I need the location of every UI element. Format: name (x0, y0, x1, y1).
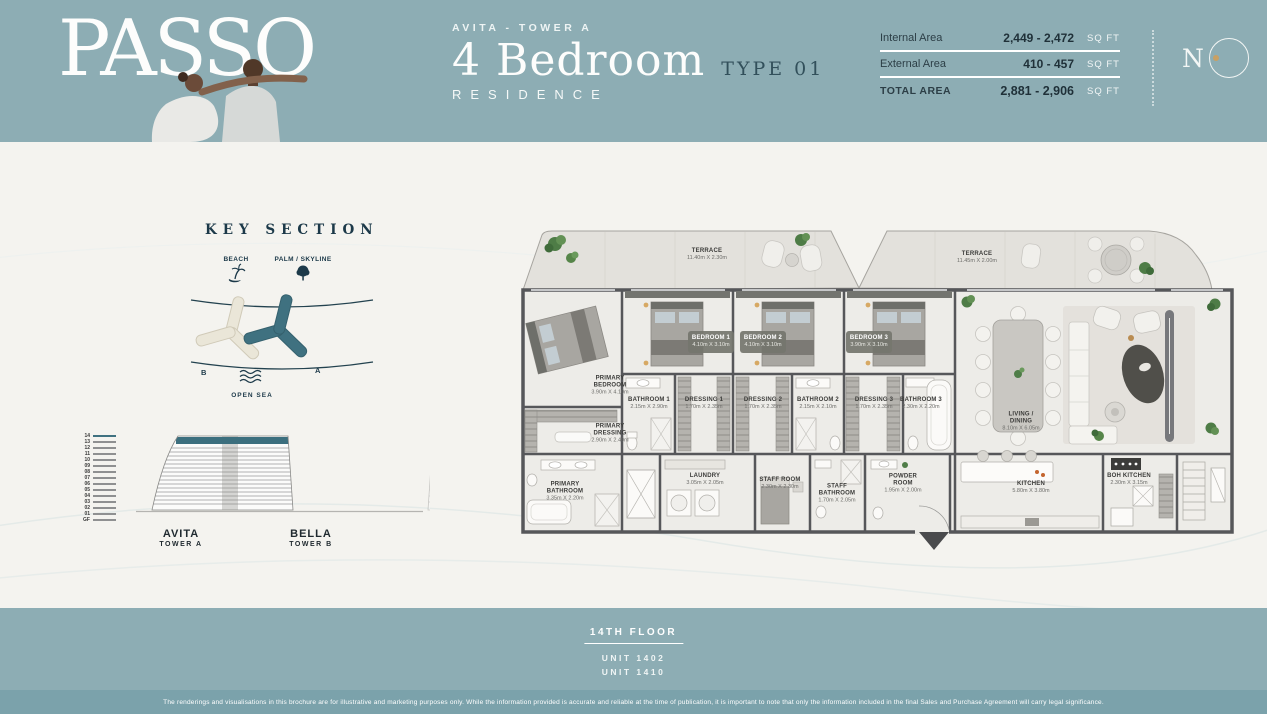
floor-scale: 1413121110090807060504030201GF (80, 433, 116, 523)
room-name: STAFF ROOM (756, 477, 804, 484)
floor-dash (93, 465, 116, 467)
room-name: PRIMARY BATHROOM (541, 482, 589, 496)
floor-dash (93, 501, 116, 503)
floor-number: 08 (80, 470, 90, 475)
room-label-powder-room: POWDER ROOM1.95m X 2.00m (879, 474, 927, 495)
floor-dash (93, 489, 116, 491)
floor-number: 03 (80, 500, 90, 505)
floor-number: 02 (80, 506, 90, 511)
room-label-bedroom-2: BEDROOM 24.10m X 3.10m (739, 335, 787, 349)
room-label-primary-bathroom: PRIMARY BATHROOM3.35m X 2.20m (541, 482, 589, 503)
key-map (183, 256, 381, 408)
room-dimensions: 5.80m X 3.80m (1007, 488, 1055, 494)
room-dimensions: 1.70m X 2.35m (680, 404, 728, 410)
floor-dash (93, 513, 116, 515)
room-dimensions: 4.10m X 3.10m (687, 342, 735, 348)
tower-b-letter: B (201, 368, 206, 377)
a-label: TOTAL AREA (880, 85, 978, 97)
room-dimensions: 1.95m X 2.00m (879, 488, 927, 494)
floor-dash (93, 507, 116, 509)
passo-logo: PASSO (58, 8, 358, 140)
room-name: BEDROOM 1 (687, 335, 735, 342)
room-name: STAFF BATHROOM (813, 484, 861, 498)
developer-logo-letter: N (1182, 44, 1204, 73)
shaft-box (627, 470, 655, 518)
avita-elevation (148, 436, 298, 510)
residence-title-block: AVITA - TOWER A 4 BedroomTYPE 01 RESIDEN… (452, 22, 824, 102)
floor-dash (93, 519, 116, 521)
avita-name: AVITA TOWER A (121, 528, 241, 548)
a-val: 2,449 - 2,472 (978, 31, 1074, 45)
room-label-kitchen: KITCHEN5.80m X 3.80m (1007, 481, 1055, 495)
floor-number: 06 (80, 482, 90, 487)
headboard-walls (625, 291, 952, 298)
room-label-bedroom-1: BEDROOM 14.10m X 3.10m (687, 335, 735, 349)
a-unit: SQ FT (1074, 33, 1120, 44)
room-name: BATHROOM 1 (625, 397, 673, 404)
tower-elevation: 1413121110090807060504030201GF (78, 430, 430, 556)
floor-number: 10 (80, 458, 90, 463)
room-dimensions: 2.90m X 2.40m (586, 438, 634, 444)
floor-info: 14TH FLOOR UNIT 1402UNIT 1410 (584, 622, 683, 679)
area-row: External Area410 - 457SQ FT (880, 52, 1120, 78)
bella-title: BELLA (251, 528, 371, 540)
room-dimensions: 1.70m X 2.05m (813, 498, 861, 504)
room-name: DRESSING 3 (850, 397, 898, 404)
floor-plan: TERRACE11.40m X 2.30mTERRACE11.45m X 2.0… (515, 222, 1237, 552)
key-section-title: KEY SECTION (205, 222, 379, 238)
a-unit: SQ FT (1074, 59, 1120, 70)
type-label: TYPE 01 (721, 58, 824, 80)
room-label-terrace-right: TERRACE11.45m X 2.00m (953, 251, 1001, 265)
residence-subtitle: RESIDENCE (452, 87, 824, 102)
room-label-terrace-left: TERRACE11.40m X 2.30m (683, 248, 731, 262)
room-dimensions: 4.10m X 3.10m (739, 342, 787, 348)
disclaimer-bar: The renderings and visualisations in thi… (0, 690, 1267, 714)
room-label-primary-dressing: PRIMARY DRESSING2.90m X 2.40m (586, 424, 634, 445)
tower-b-shape (193, 289, 273, 362)
room-name: BOH KITCHEN (1105, 473, 1153, 480)
sofa-set (1063, 304, 1195, 444)
building-elevations (118, 430, 430, 524)
a-val: 410 - 457 (978, 57, 1074, 71)
room-label-bedroom-3: BEDROOM 33.90m X 3.10m (845, 335, 893, 349)
bella-elevation (423, 436, 430, 510)
room-label-living-dining: LIVING / DINING8.10m X 6.05m (997, 412, 1045, 433)
brochure-page: PASSO AVITA - TOWER A 4 BedroomTYPE 01 R… (0, 0, 1267, 714)
room-label-boh-kitchen: BOH KITCHEN2.30m X 3.15m (1105, 473, 1153, 487)
room-name: PRIMARY BEDROOM (586, 376, 634, 390)
room-dimensions: 2.30m X 2.30m (756, 484, 804, 490)
a-val: 2,881 - 2,906 (978, 84, 1074, 98)
floor-dash (93, 495, 116, 497)
room-name: KITCHEN (1007, 481, 1055, 488)
room-name: BATHROOM 2 (794, 397, 842, 404)
room-dimensions: 2.30m X 3.15m (1105, 480, 1153, 486)
dotted-divider (1152, 30, 1154, 106)
floor-number: 04 (80, 494, 90, 499)
room-name: POWDER ROOM (879, 474, 927, 488)
room-label-primary-bedroom: PRIMARY BEDROOM3.90m X 4.10m (586, 376, 634, 397)
floor-number: 09 (80, 464, 90, 469)
room-label-bathroom-1: BATHROOM 12.15m X 2.90m (625, 397, 673, 411)
tower-line: AVITA - TOWER A (452, 22, 824, 34)
unit-list: UNIT 1402UNIT 1410 (584, 651, 683, 679)
room-name: DRESSING 1 (680, 397, 728, 404)
room-dimensions: 11.40m X 2.30m (683, 255, 731, 261)
sea-line (191, 362, 373, 369)
room-label-laundry: LAUNDRY3.05m X 2.05m (681, 473, 729, 487)
room-label-dressing-1: DRESSING 11.70m X 2.35m (680, 397, 728, 411)
room-label-staff-room: STAFF ROOM2.30m X 2.30m (756, 477, 804, 491)
floor-scale-row: GF (80, 517, 116, 523)
area-table: Internal Area2,449 - 2,472SQ FTExternal … (880, 26, 1120, 104)
floor-number: 05 (80, 488, 90, 493)
room-label-dressing-3: DRESSING 31.70m X 2.35m (850, 397, 898, 411)
floor-number: GF (80, 518, 90, 523)
unit-number: UNIT 1402 (584, 651, 683, 665)
bella-subtitle: TOWER B (251, 541, 371, 548)
floor-dash (93, 459, 116, 461)
floor-number: 14 (80, 434, 90, 439)
floor-number: 12 (80, 446, 90, 451)
room-dimensions: 1.70m X 2.35m (850, 404, 898, 410)
header-band: PASSO AVITA - TOWER A 4 BedroomTYPE 01 R… (0, 0, 1267, 142)
room-name: TERRACE (953, 251, 1001, 258)
tower-a-letter: A (315, 366, 320, 375)
room-name: BEDROOM 3 (845, 335, 893, 342)
a-label: External Area (880, 58, 978, 70)
circle-icon (1209, 38, 1249, 78)
avita-title: AVITA (121, 528, 241, 540)
room-dimensions: 3.05m X 2.05m (681, 480, 729, 486)
floor-number: 11 (80, 452, 90, 457)
residence-title: 4 BedroomTYPE 01 (452, 38, 824, 84)
room-name: LIVING / DINING (997, 412, 1045, 426)
disclaimer-text: The renderings and visualisations in thi… (163, 699, 1104, 706)
a-label: Internal Area (880, 32, 978, 44)
room-dimensions: 1.70m X 2.35m (739, 404, 787, 410)
residence-title-text: 4 Bedroom (452, 35, 705, 86)
floor-dash (93, 435, 116, 437)
a-unit: SQ FT (1074, 86, 1120, 97)
floor-number: 13 (80, 440, 90, 445)
floor-number: 07 (80, 476, 90, 481)
floor-dash (93, 453, 116, 455)
room-dimensions: 8.10m X 6.05m (997, 426, 1045, 432)
floor-dash (93, 441, 116, 443)
room-label-bathroom-2: BATHROOM 22.15m X 2.10m (794, 397, 842, 411)
floor-dash (93, 471, 116, 473)
room-dimensions: 3.90m X 3.10m (845, 342, 893, 348)
gold-dot-icon (1213, 55, 1219, 61)
bella-name: BELLA TOWER B (251, 528, 371, 548)
dancers-photo (106, 42, 321, 142)
room-label-staff-bathroom: STAFF BATHROOM1.70m X 2.05m (813, 484, 861, 505)
room-name: DRESSING 2 (739, 397, 787, 404)
area-row: Internal Area2,449 - 2,472SQ FT (880, 26, 1120, 52)
floor-dash (93, 483, 116, 485)
room-name: BEDROOM 2 (739, 335, 787, 342)
room-label-bathroom-3: BATHROOM 32.30m X 2.20m (897, 397, 945, 411)
room-name: PRIMARY DRESSING (586, 424, 634, 438)
floor-label: 14TH FLOOR (584, 627, 683, 644)
floor-dash (93, 477, 116, 479)
key-section-diagram: BEACH PALM / SKYLINE (183, 256, 381, 408)
room-dimensions: 2.15m X 2.90m (625, 404, 673, 410)
room-dimensions: 3.90m X 4.10m (586, 390, 634, 396)
floor-dash (93, 447, 116, 449)
room-name: LAUNDRY (681, 473, 729, 480)
room-dimensions: 3.35m X 2.20m (541, 496, 589, 502)
room-dimensions: 11.45m X 2.00m (953, 258, 1001, 264)
waves-icon (240, 371, 261, 383)
floor-number: 01 (80, 512, 90, 517)
unit-number: UNIT 1410 (584, 665, 683, 679)
area-row: TOTAL AREA2,881 - 2,906SQ FT (880, 78, 1120, 104)
room-dimensions: 2.30m X 2.20m (897, 404, 945, 410)
room-name: TERRACE (683, 248, 731, 255)
open-sea-label: OPEN SEA (207, 392, 297, 399)
room-label-dressing-2: DRESSING 21.70m X 2.35m (739, 397, 787, 411)
avita-subtitle: TOWER A (121, 541, 241, 548)
room-dimensions: 2.15m X 2.10m (794, 404, 842, 410)
room-name: BATHROOM 3 (897, 397, 945, 404)
developer-logo: N (1182, 38, 1249, 78)
